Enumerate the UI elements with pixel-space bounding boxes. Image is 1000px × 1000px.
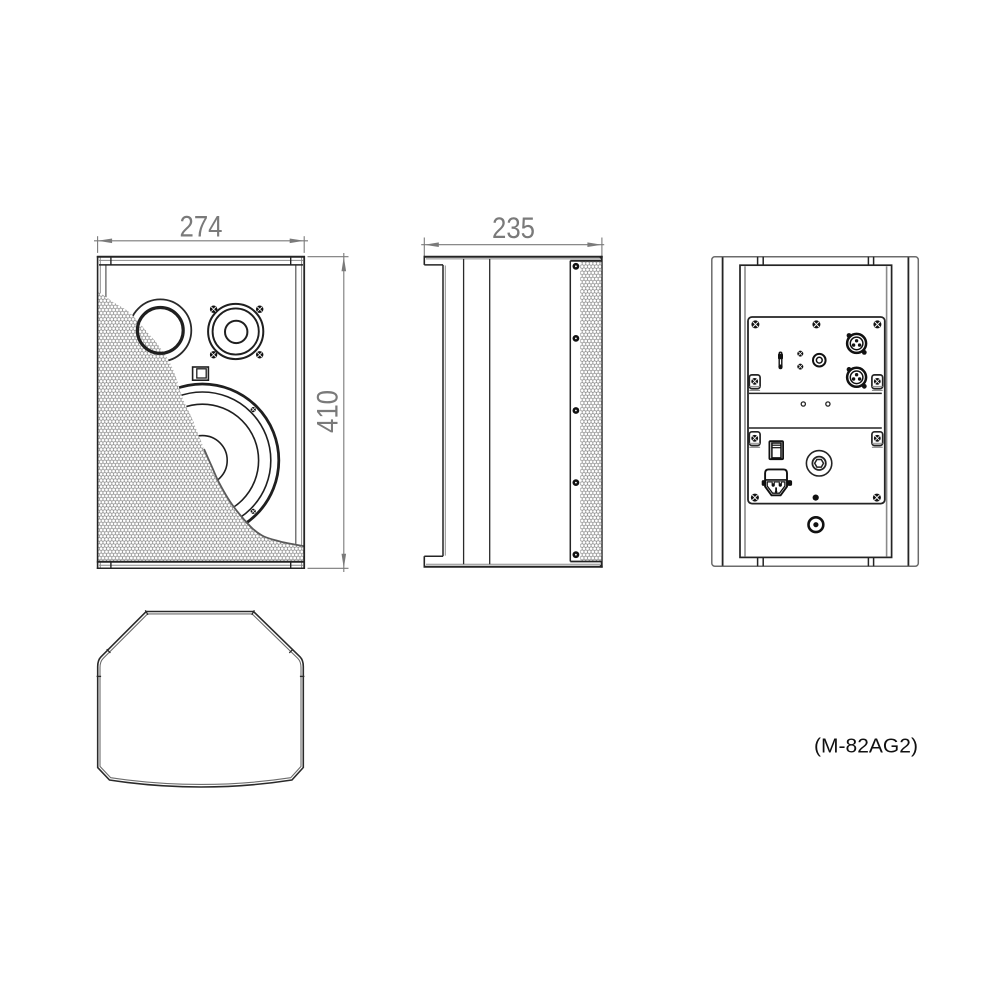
svg-text:410: 410 (312, 390, 345, 433)
svg-text:235: 235 (492, 212, 535, 245)
svg-text:(M-82AG2): (M-82AG2) (814, 735, 918, 758)
svg-text:274: 274 (180, 210, 223, 243)
